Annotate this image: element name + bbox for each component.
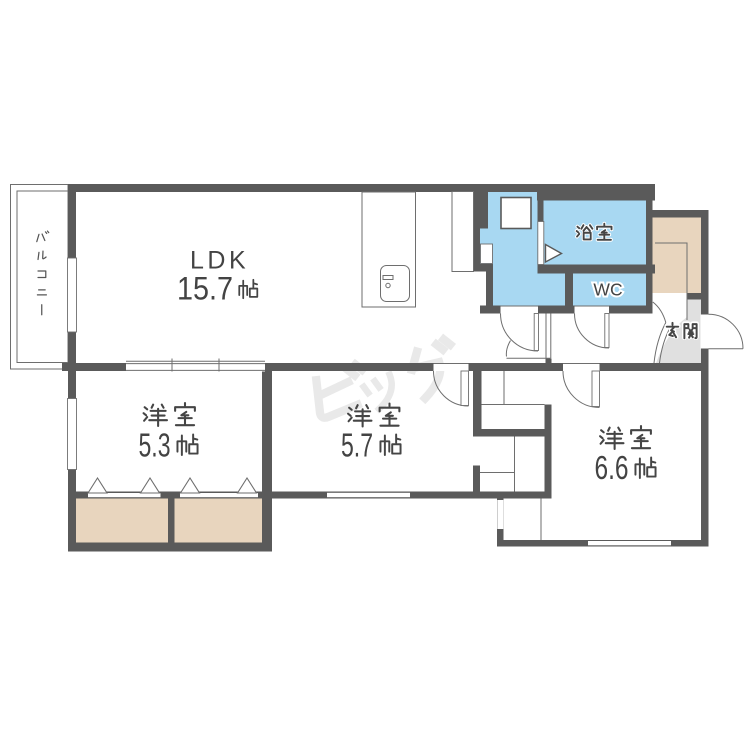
svg-text:6.6: 6.6 [595, 449, 629, 486]
svg-text:15.7: 15.7 [177, 271, 233, 307]
svg-text:5.3: 5.3 [139, 427, 171, 464]
svg-text:WC: WC [593, 280, 622, 300]
svg-text:5.7: 5.7 [341, 427, 373, 464]
